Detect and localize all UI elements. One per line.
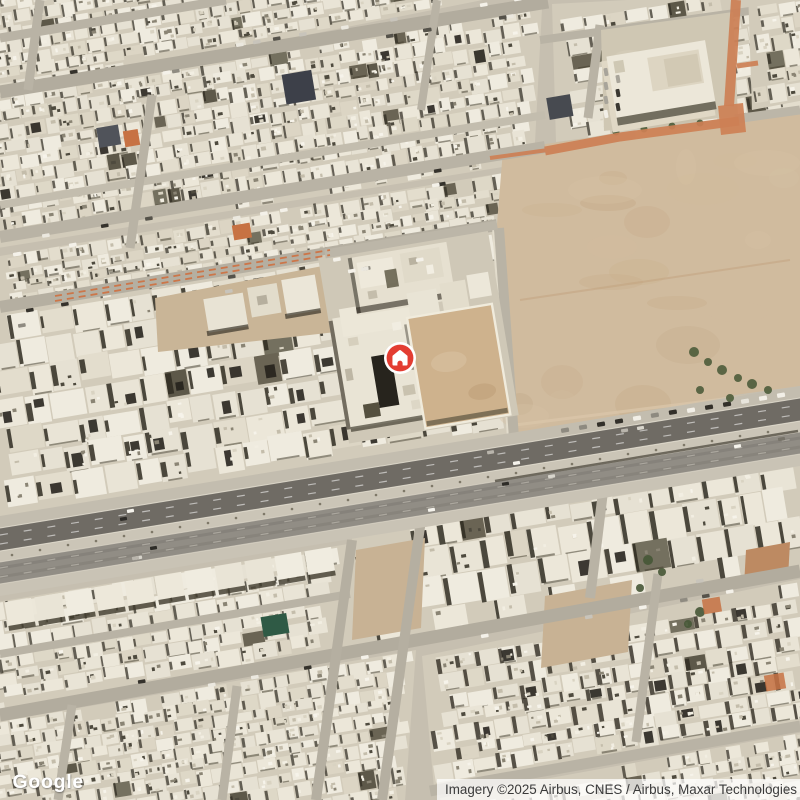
- svg-text:Google: Google: [13, 771, 84, 793]
- svg-text:Imagery ©2025 Airbus, CNES / A: Imagery ©2025 Airbus, CNES / Airbus, Max…: [445, 782, 797, 797]
